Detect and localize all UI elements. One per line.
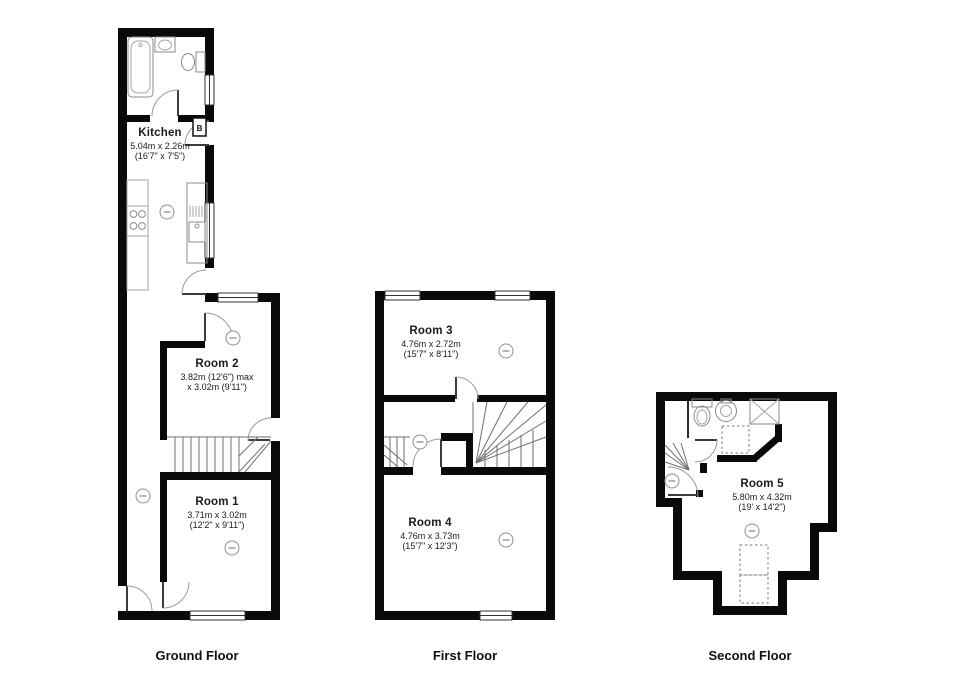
floorplan-canvas: B [0, 0, 980, 696]
boiler-box: B [193, 118, 206, 136]
floor-title-second: Second Floor [670, 648, 830, 663]
door-arc-icon [668, 440, 717, 497]
door-arc-icon [127, 90, 271, 611]
reference-marker-icon [413, 344, 513, 547]
first-floor-walls [375, 291, 555, 620]
bathtub-icon [128, 37, 153, 97]
basin-icon [155, 37, 175, 52]
boiler-label: B [197, 124, 203, 133]
stairs-icon [665, 443, 689, 470]
floor-title-first: First Floor [385, 648, 545, 663]
ground-floor-plan: B [110, 24, 285, 624]
kitchen-counter-icon [127, 180, 148, 290]
sink-unit-icon [187, 183, 207, 263]
stairs-icon [167, 437, 271, 472]
ground-floor-walls [118, 28, 280, 620]
second-floor-walls [656, 392, 837, 615]
floor-title-ground: Ground Floor [117, 648, 277, 663]
shower-icon [750, 399, 779, 424]
second-floor-plan [648, 385, 848, 630]
first-floor-plan [370, 285, 565, 625]
reference-marker-icon [136, 205, 240, 555]
restricted-height-dashed-outline [740, 545, 768, 603]
stairs-icon [384, 437, 410, 467]
toilet-icon [182, 52, 206, 72]
stairs-icon [473, 402, 546, 467]
hob-icon [130, 211, 145, 230]
skylight-dashed-outline [722, 426, 749, 453]
toilet-icon [692, 399, 712, 426]
window-icon [385, 291, 530, 620]
basin-icon [716, 399, 737, 422]
